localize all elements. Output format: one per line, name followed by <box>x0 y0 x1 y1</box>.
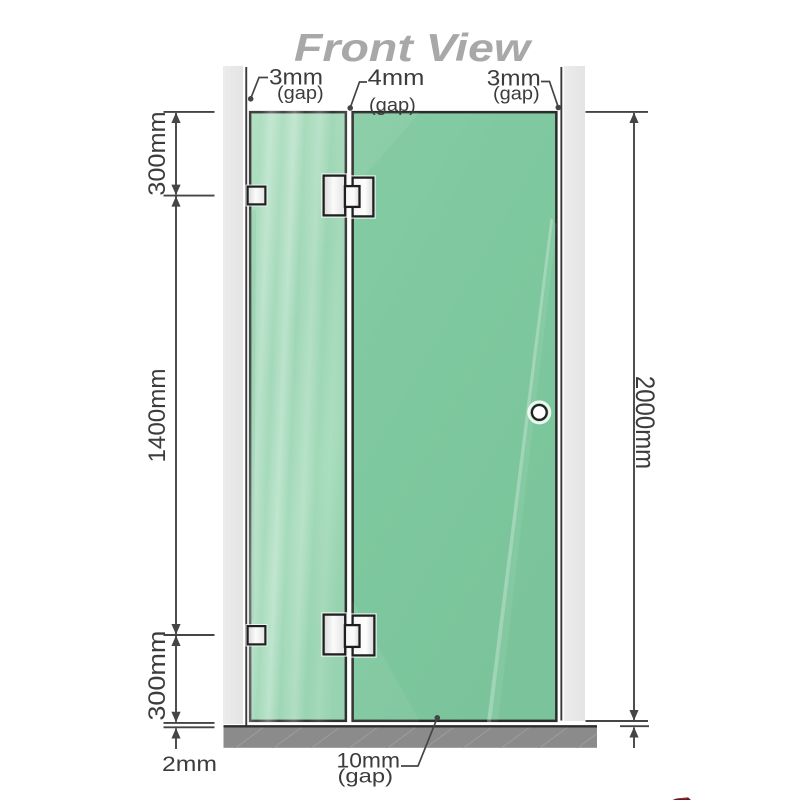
svg-text:(gap): (gap) <box>277 82 324 103</box>
svg-text:(gap): (gap) <box>338 766 394 788</box>
svg-text:1400mm: 1400mm <box>144 369 171 463</box>
svg-text:2000mm: 2000mm <box>630 376 660 469</box>
svg-text:300mm: 300mm <box>144 111 171 195</box>
svg-text:300mm: 300mm <box>144 631 171 721</box>
svg-text:2mm: 2mm <box>162 751 217 776</box>
svg-text:Front View: Front View <box>294 27 532 70</box>
svg-text:(gap): (gap) <box>493 83 540 104</box>
svg-text:4mm: 4mm <box>368 65 425 90</box>
svg-text:(gap): (gap) <box>369 94 416 115</box>
